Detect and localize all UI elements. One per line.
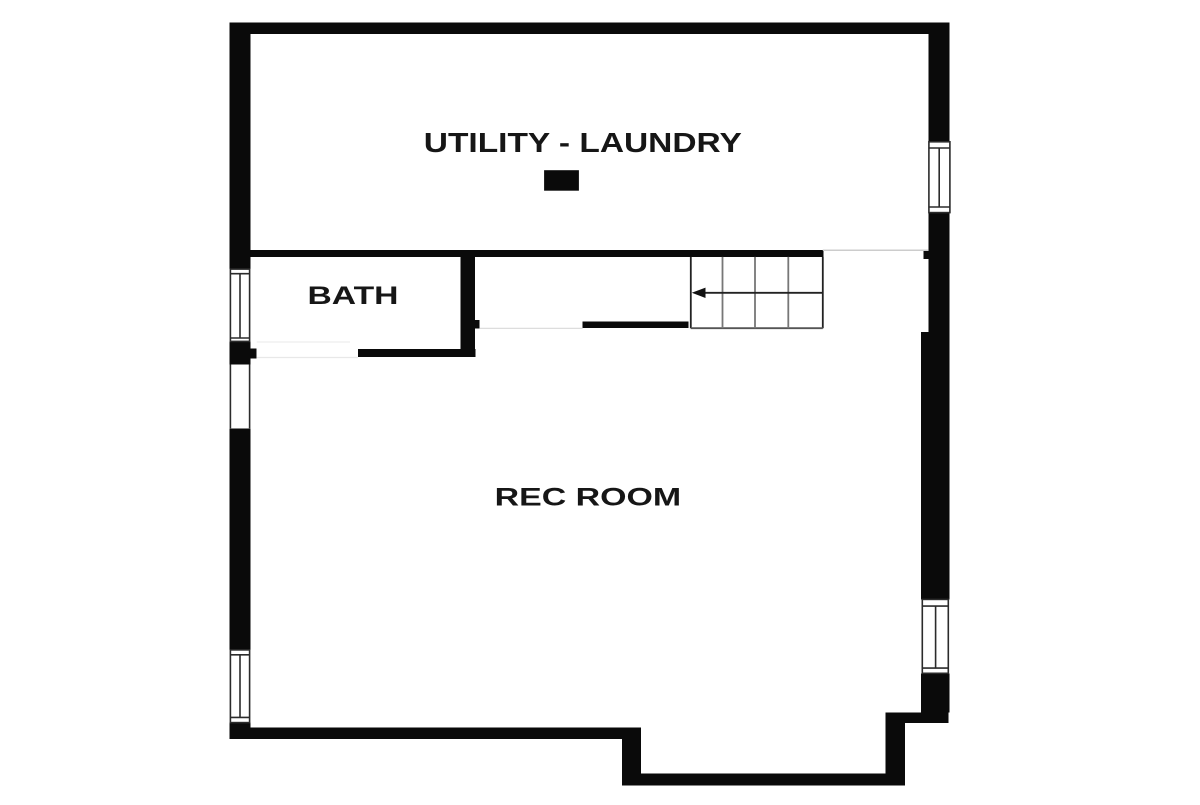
svg-text:BATH: BATH [308, 283, 399, 310]
svg-text:UTILITY - LAUNDRY: UTILITY - LAUNDRY [424, 126, 742, 158]
svg-text:REC ROOM: REC ROOM [495, 484, 681, 511]
